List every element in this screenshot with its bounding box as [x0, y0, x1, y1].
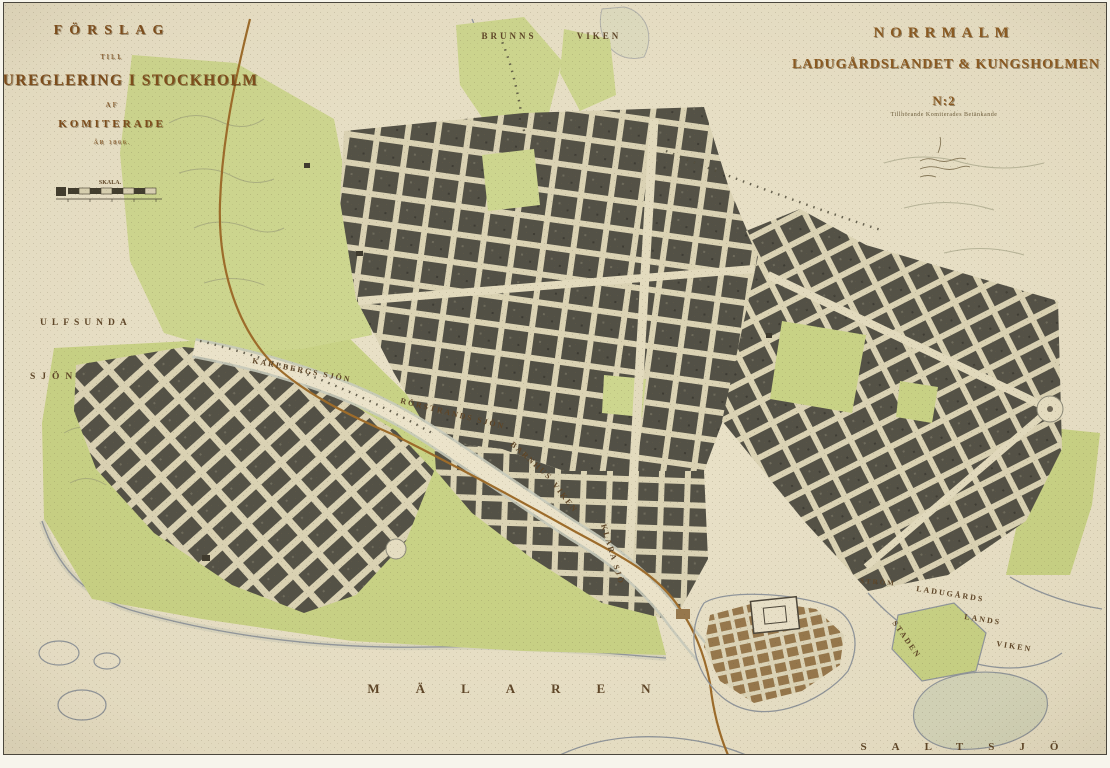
title-subtitle: Tillhörande Komiterades Betänkande — [792, 112, 1096, 118]
title-cartouche-right: NORRMALM LADUGÅRDSLANDET & KUNGSHOLMEN N… — [792, 25, 1096, 118]
title-till: TILL — [3, 53, 262, 61]
title-ladugardslandet: LADUGÅRDSLANDET & KUNGSHOLMEN — [792, 57, 1096, 73]
title-gatureglering: GATUREGLERING I STOCKHOLM — [3, 72, 262, 90]
title-af: AF — [3, 101, 262, 109]
scanned-map-frame: SKALA. BRUNNSVIK — [0, 0, 1110, 768]
title-year: ÅR 1866. — [3, 139, 262, 146]
title-norrmalm: NORRMALM — [792, 25, 1096, 42]
title-cartouche-left: FÖRSLAG TILL GATUREGLERING I STOCKHOLM A… — [3, 23, 262, 146]
title-forslag: FÖRSLAG — [3, 23, 262, 39]
map-sheet: SKALA. BRUNNSVIK — [3, 2, 1107, 755]
title-komiterade: KOMITERADE — [3, 118, 262, 130]
title-sheet-number: N:2 — [792, 93, 1096, 109]
